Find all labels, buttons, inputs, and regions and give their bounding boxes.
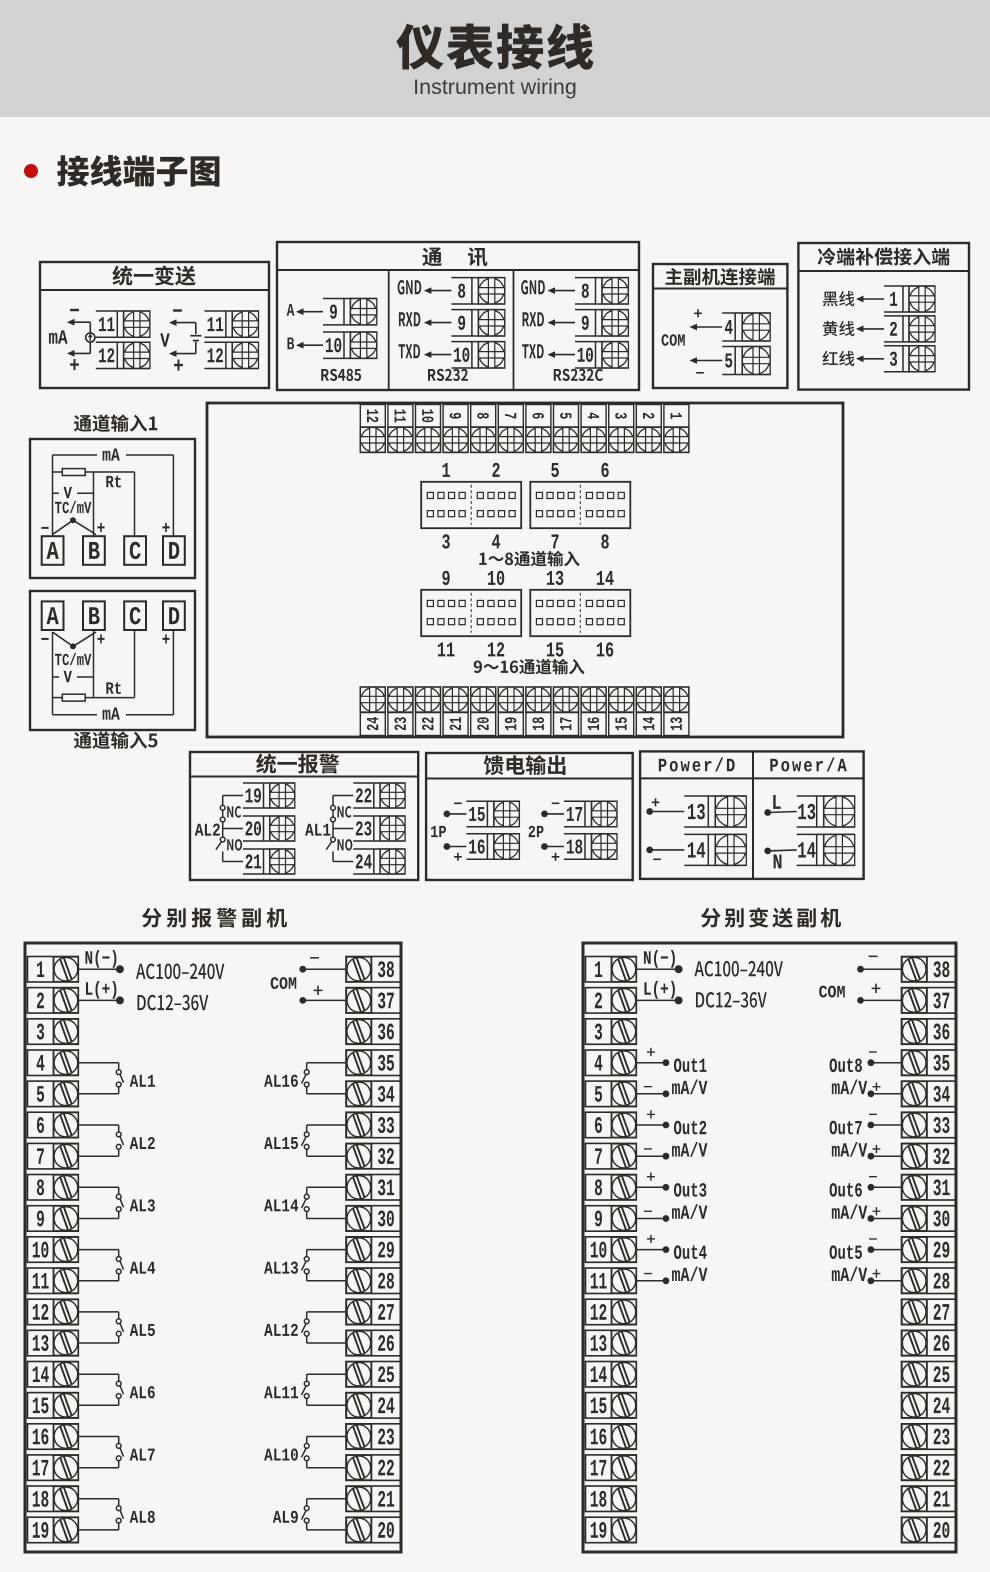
svg-text:Instrument wiring: Instrument wiring xyxy=(413,75,577,99)
